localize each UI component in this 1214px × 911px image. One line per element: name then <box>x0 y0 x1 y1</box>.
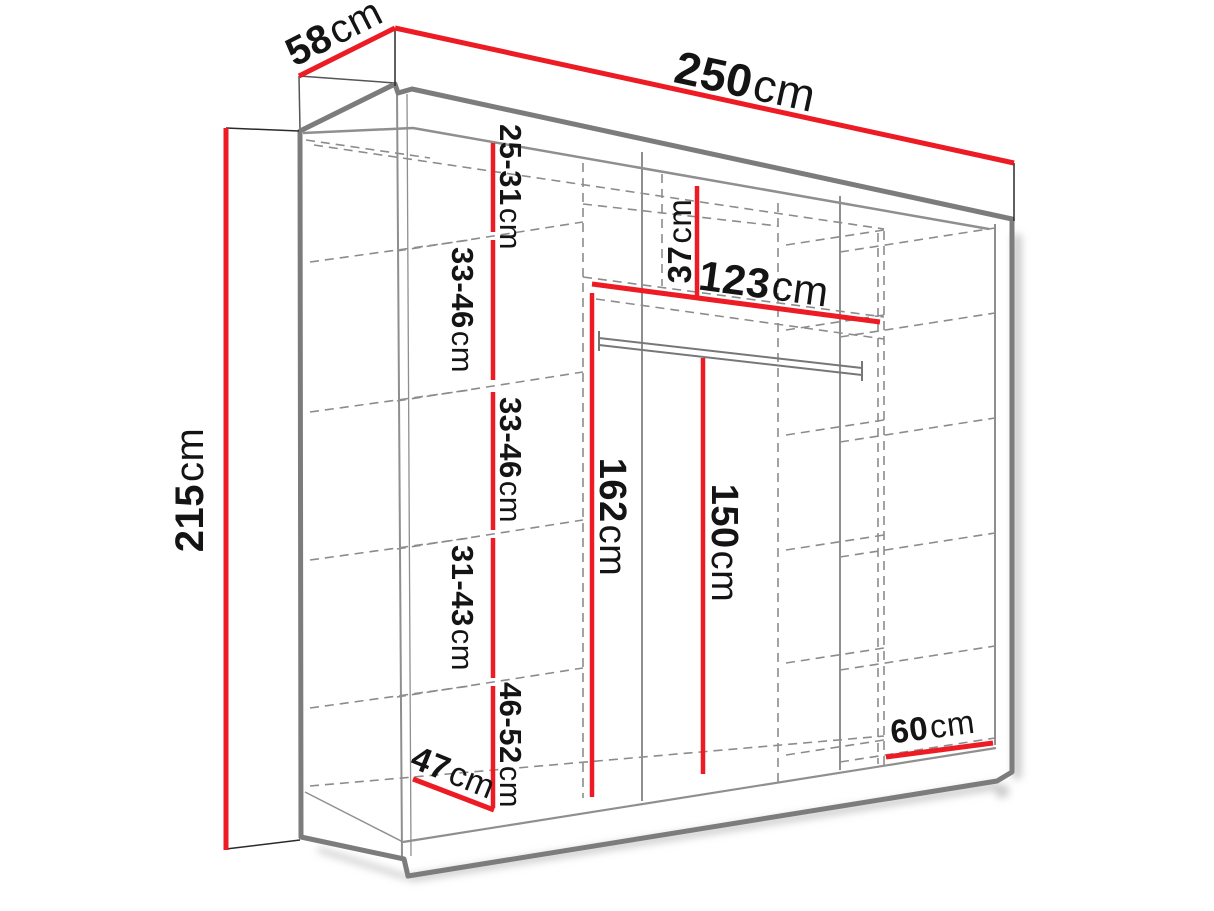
clothes-rail <box>599 331 862 381</box>
dim-shelf-width-label: 123cm <box>696 252 832 316</box>
dim-gap3-label: 33-46cm <box>493 397 528 523</box>
shelf-line <box>840 228 995 252</box>
shelf-line <box>310 686 470 708</box>
shelf-line <box>840 646 995 670</box>
top-left-edge <box>299 76 300 130</box>
left-wall-inner-edge <box>397 90 402 858</box>
shelf-line <box>397 372 583 401</box>
shelf-line <box>840 533 995 557</box>
shelf-line <box>397 520 583 549</box>
dim-top-gap-label: 37cm <box>661 199 698 284</box>
shelf-line <box>786 420 884 435</box>
dim-hang-left-label: 162cm <box>591 458 633 577</box>
shelf-line <box>786 230 884 245</box>
dim-gap5-label: 46-52cm <box>493 682 528 808</box>
shelf-line <box>840 313 995 337</box>
ceiling-corner-edge <box>306 140 430 158</box>
shelf-line <box>310 390 470 412</box>
wardrobe-diagram-canvas: 58cm 250cm 215cm 25-31cm 33-46cm 33-46cm… <box>0 0 1214 911</box>
dim-hang-right-label: 150cm <box>703 484 745 603</box>
shelf-line <box>786 740 884 755</box>
dim-gap1-label: 25-31cm <box>493 124 528 250</box>
dim-width-label: 250cm <box>670 41 820 122</box>
shelf-line <box>786 648 884 663</box>
dim-height-label: 215cm <box>168 428 212 553</box>
shelf-line <box>397 222 583 251</box>
shelf-line <box>786 535 884 550</box>
top-back-edge <box>299 76 395 83</box>
wardrobe-outline <box>300 84 1012 876</box>
wardrobe-diagram: 58cm 250cm 215cm 25-31cm 33-46cm 33-46cm… <box>0 0 1214 911</box>
shelf-line <box>397 668 583 697</box>
left-wall-inner-edge-2 <box>407 94 411 856</box>
ceiling-front-edge <box>303 128 989 229</box>
shelf-line <box>840 418 995 442</box>
dim-gap2-label: 33-46cm <box>445 247 480 373</box>
left-wall-bottom-edge <box>305 792 403 842</box>
ceiling-back-edge <box>314 145 884 229</box>
dim-gap4-label: 31-43cm <box>445 545 480 671</box>
